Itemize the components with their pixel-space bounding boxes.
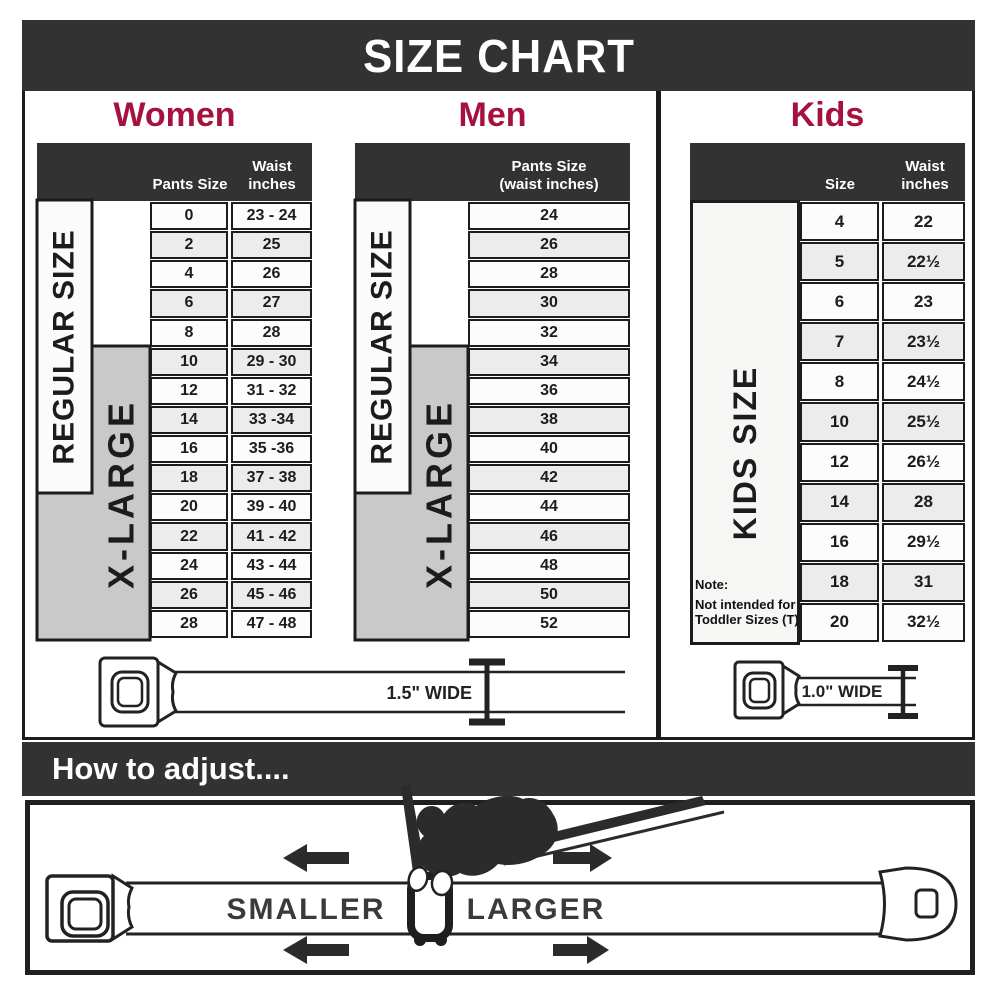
table-cell: 25½ xyxy=(882,402,965,441)
table-cell: 36 xyxy=(468,377,630,405)
table-cell: 46 xyxy=(468,522,630,550)
table-cell: 48 xyxy=(468,552,630,580)
table-cell: 10 xyxy=(150,348,228,376)
table-cell: 4 xyxy=(150,260,228,288)
table-cell: 6 xyxy=(800,282,879,321)
table-cell: 10 xyxy=(800,402,879,441)
table-cell: 16 xyxy=(800,523,879,562)
table-cell: 14 xyxy=(150,406,228,434)
adult-belt-illustration: 1.5" WIDE xyxy=(40,650,650,740)
table-cell: 28 xyxy=(882,483,965,522)
men-size-range-labels: REGULAR SIZE X-LARGE xyxy=(353,198,473,644)
how-to-adjust-title: How to adjust.... xyxy=(52,751,290,787)
men-table-header: Pants Size (waist inches) xyxy=(355,143,630,201)
panel-divider xyxy=(656,91,661,740)
table-cell: 26½ xyxy=(882,443,965,482)
table-cell: 38 xyxy=(468,406,630,434)
kids-size-label: KIDS SIZE xyxy=(727,366,763,540)
men-regular-size-label: REGULAR SIZE xyxy=(366,229,399,464)
table-cell: 0 xyxy=(150,202,228,230)
men-table-body: 242628303234363840424446485052 xyxy=(468,202,630,638)
kids-table-body: 422522½623723½824½1025½1226½14281629½183… xyxy=(800,202,965,642)
table-cell: 12 xyxy=(150,377,228,405)
buckle-latch-icon xyxy=(783,666,799,714)
table-cell: 18 xyxy=(800,563,879,602)
table-cell: 30 xyxy=(468,289,630,317)
table-cell: 41 - 42 xyxy=(231,522,312,550)
table-cell: 23 xyxy=(882,282,965,321)
table-cell: 29 - 30 xyxy=(231,348,312,376)
table-cell: 7 xyxy=(800,322,879,361)
table-cell: 50 xyxy=(468,581,630,609)
table-cell: 20 xyxy=(800,603,879,642)
table-cell: 45 - 46 xyxy=(231,581,312,609)
table-cell: 42 xyxy=(468,464,630,492)
kids-belt-width-label: 1.0" WIDE xyxy=(802,682,883,701)
table-cell: 22 xyxy=(150,522,228,550)
kids-col-waist: Waist inches xyxy=(875,158,975,196)
table-cell: 29½ xyxy=(882,523,965,562)
table-cell: 28 xyxy=(150,610,228,638)
kids-table-header: Size Waist inches xyxy=(690,143,965,201)
table-cell: 23½ xyxy=(882,322,965,361)
table-cell: 37 - 38 xyxy=(231,464,312,492)
table-cell: 18 xyxy=(150,464,228,492)
adjust-illustration-panel xyxy=(25,800,975,975)
table-cell: 22½ xyxy=(882,242,965,281)
page-title: SIZE CHART xyxy=(363,29,635,83)
women-size-range-labels: REGULAR SIZE X-LARGE xyxy=(35,198,155,644)
table-cell: 23 - 24 xyxy=(231,202,312,230)
table-cell: 6 xyxy=(150,289,228,317)
table-cell: 44 xyxy=(468,493,630,521)
table-cell: 40 xyxy=(468,435,630,463)
women-regular-size-label: REGULAR SIZE xyxy=(48,229,81,464)
table-cell: 26 xyxy=(150,581,228,609)
table-cell: 43 - 44 xyxy=(231,552,312,580)
table-cell: 26 xyxy=(231,260,312,288)
table-cell: 47 - 48 xyxy=(231,610,312,638)
table-cell: 52 xyxy=(468,610,630,638)
table-cell: 2 xyxy=(150,231,228,259)
table-cell: 14 xyxy=(800,483,879,522)
table-cell: 8 xyxy=(150,319,228,347)
table-cell: 16 xyxy=(150,435,228,463)
table-cell: 31 xyxy=(882,563,965,602)
men-section-title: Men xyxy=(355,94,630,136)
table-cell: 24 xyxy=(468,202,630,230)
table-cell: 8 xyxy=(800,362,879,401)
kids-belt-illustration: 1.0" WIDE xyxy=(700,650,970,740)
table-cell: 20 xyxy=(150,493,228,521)
table-cell: 25 xyxy=(231,231,312,259)
table-cell: 24 xyxy=(150,552,228,580)
women-section-title: Women xyxy=(37,94,312,136)
table-cell: 32 xyxy=(468,319,630,347)
table-cell: 32½ xyxy=(882,603,965,642)
table-cell: 39 - 40 xyxy=(231,493,312,521)
men-col-pants-size: Pants Size (waist inches) xyxy=(499,158,599,196)
women-table-body: 023 - 242254266278281029 - 301231 - 3214… xyxy=(150,202,312,638)
table-cell: 24½ xyxy=(882,362,965,401)
kids-section-title: Kids xyxy=(690,94,965,136)
size-chart-header-bar: SIZE CHART xyxy=(22,20,975,91)
kids-note: Note: Not intended for Toddler Sizes (T) xyxy=(695,577,799,628)
table-cell: 28 xyxy=(231,319,312,347)
table-cell: 34 xyxy=(468,348,630,376)
women-table-header: Pants Size Waist inches xyxy=(37,143,312,201)
table-cell: 26 xyxy=(468,231,630,259)
table-cell: 27 xyxy=(231,289,312,317)
table-cell: 28 xyxy=(468,260,630,288)
size-chart-page: SIZE CHART Women Men Kids Pants Size Wai… xyxy=(0,0,1000,1000)
table-cell: 5 xyxy=(800,242,879,281)
women-xlarge-label: X-LARGE xyxy=(101,399,142,589)
table-cell: 12 xyxy=(800,443,879,482)
table-cell: 22 xyxy=(882,202,965,241)
buckle-latch-icon xyxy=(158,662,176,722)
adult-belt-width-label: 1.5" WIDE xyxy=(386,683,472,703)
women-col-waist: Waist inches xyxy=(222,158,322,196)
table-cell: 4 xyxy=(800,202,879,241)
table-cell: 31 - 32 xyxy=(231,377,312,405)
men-xlarge-label: X-LARGE xyxy=(419,399,460,589)
how-to-adjust-bar: How to adjust.... xyxy=(22,742,975,796)
table-cell: 35 -36 xyxy=(231,435,312,463)
table-cell: 33 -34 xyxy=(231,406,312,434)
